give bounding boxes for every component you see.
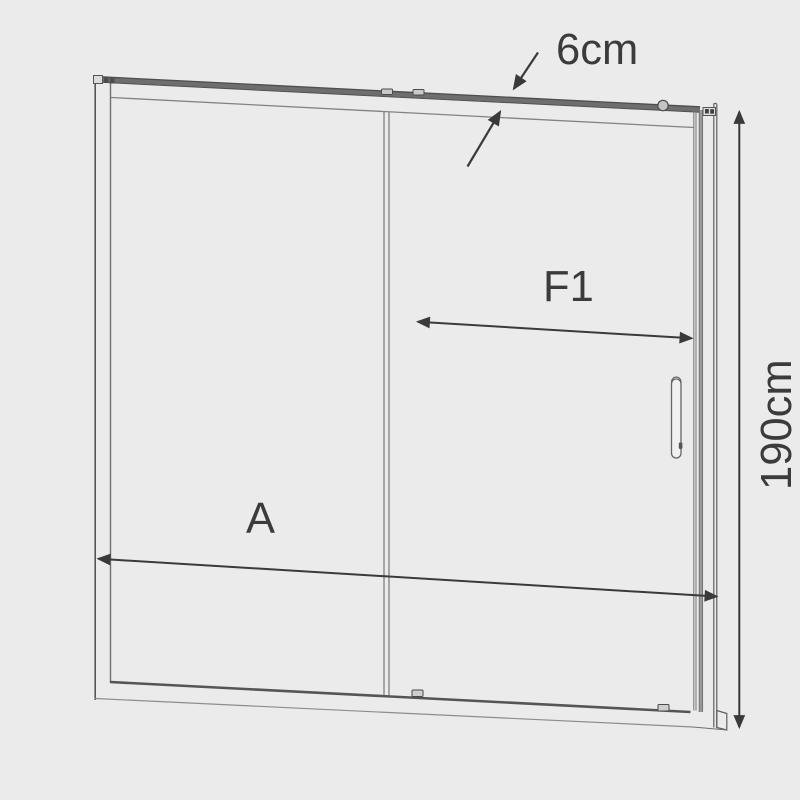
roller-clip-bottom-right [658,705,669,712]
top-rail-band [101,80,700,110]
left-post-top-cap [94,76,103,84]
roller-clip-top-left [382,89,393,95]
top-right-bracket-screw [710,109,714,114]
dimension-arrow-width-a [99,559,717,597]
left-rail-clip [110,78,115,84]
label-overall-height-dimension: 190cm [753,359,800,490]
diagram-canvas: 6cm F1 A 190cm [0,0,800,800]
right-post-foot [717,711,727,731]
pointer-arrow-glass-top [468,112,501,167]
dimension-annotations [99,53,740,728]
top-rail-bottom-edge [101,82,700,112]
roller-wheel-top-right [658,100,668,110]
door-handle-mount-nub [679,443,683,450]
bottom-rail-lower-edge [95,699,693,728]
label-top-rail-dimension: 6cm [556,26,638,74]
door-handle [672,377,683,458]
door-frame [94,76,727,731]
middle-divider [384,112,389,695]
shower-door-dimension-diagram: 6cm F1 A 190cm [0,0,800,800]
bottom-rail-band [110,682,691,712]
left-rail-clip [104,78,109,84]
top-rail [101,77,700,113]
top-rail-top-edge [101,77,700,107]
roller-clip-bottom-left [412,690,423,697]
right-post [694,104,727,731]
dimension-arrow-panel-f1 [418,322,692,339]
label-overall-width-dimension: A [246,495,275,543]
left-post [94,76,115,701]
pointer-arrow-top-rail [514,53,538,89]
label-sliding-panel-dimension: F1 [543,263,594,311]
bottom-rail [95,682,727,730]
roller-clip-top-mid [413,90,424,96]
top-right-bracket-screw [705,109,709,114]
